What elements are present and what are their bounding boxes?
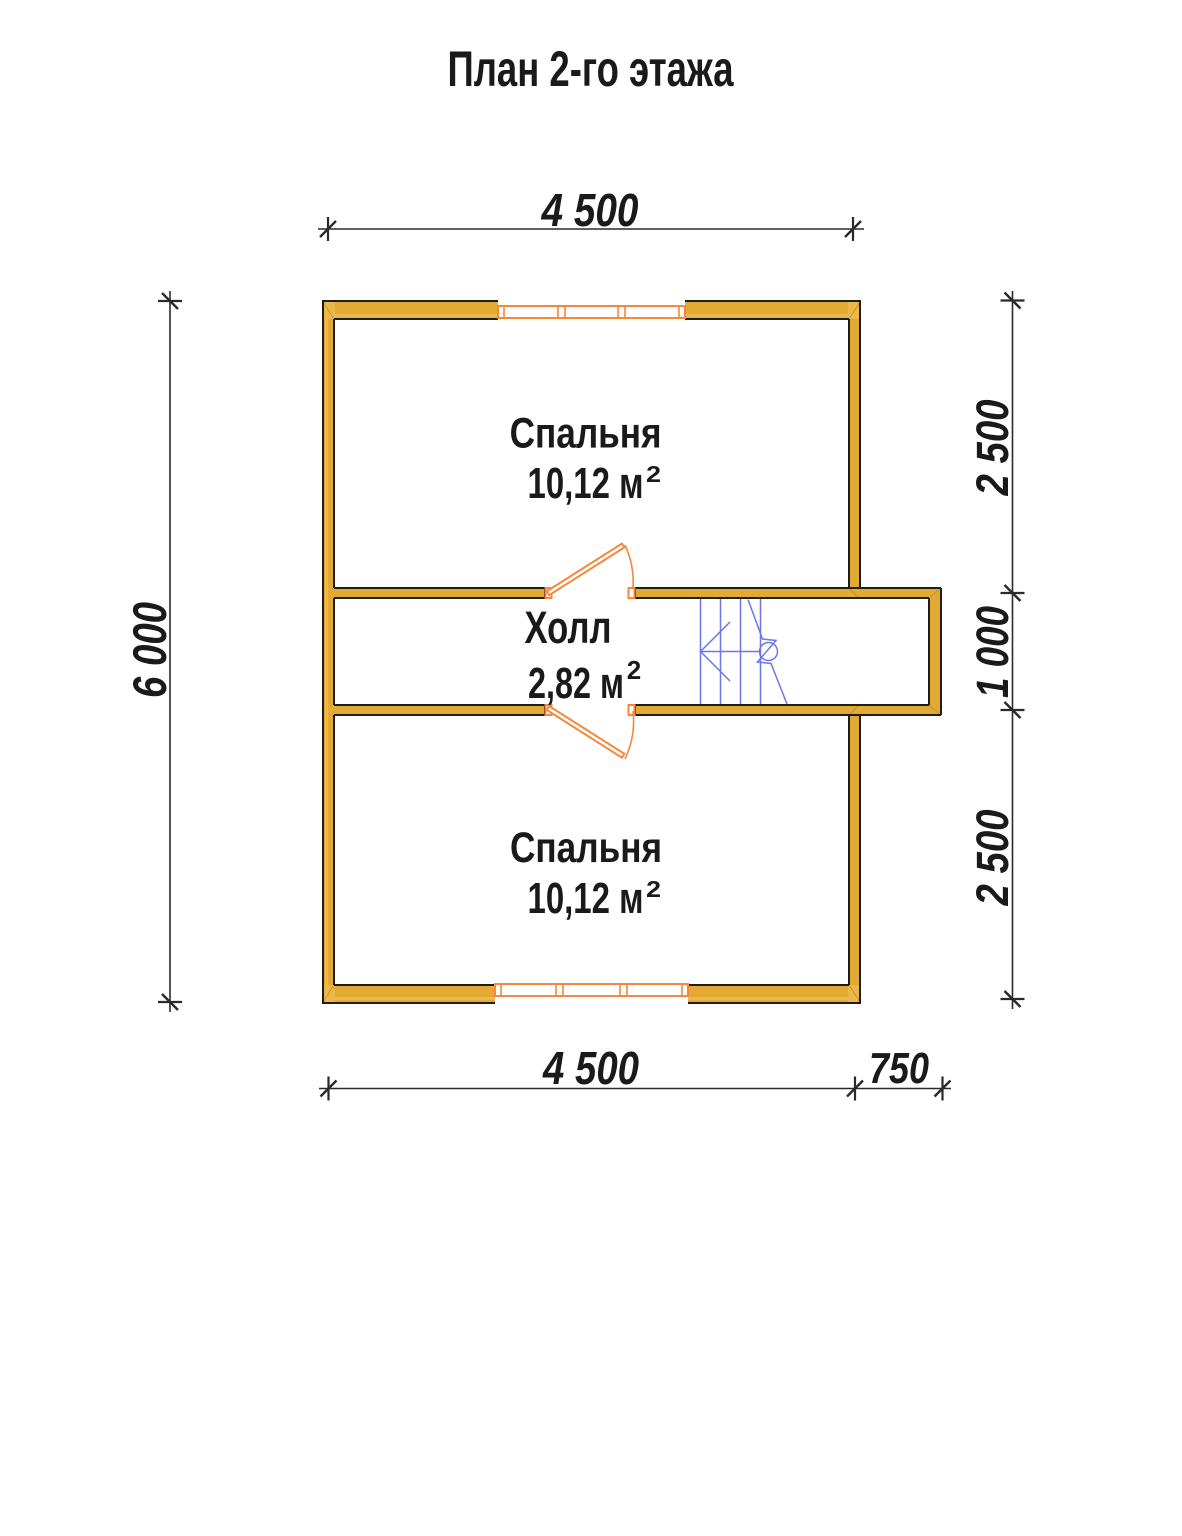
svg-text:План 2-го этажа: План 2-го этажа [448, 41, 735, 97]
svg-text:10,12 м: 10,12 м [528, 874, 644, 923]
svg-text:2: 2 [627, 655, 641, 685]
svg-text:2: 2 [646, 876, 661, 902]
svg-text:4 500: 4 500 [542, 1042, 639, 1094]
svg-text:750: 750 [869, 1044, 929, 1093]
svg-text:2,82 м: 2,82 м [528, 659, 624, 708]
svg-text:4 500: 4 500 [541, 184, 639, 236]
svg-text:6 000: 6 000 [123, 602, 176, 698]
svg-text:2: 2 [646, 461, 661, 487]
svg-text:2 500: 2 500 [967, 810, 1018, 907]
svg-text:Холл: Холл [525, 602, 612, 653]
svg-text:Спальня: Спальня [510, 410, 662, 458]
svg-text:10,12 м: 10,12 м [528, 459, 644, 508]
svg-text:Спальня: Спальня [510, 824, 662, 872]
svg-text:1 000: 1 000 [967, 606, 1018, 698]
svg-text:2 500: 2 500 [967, 400, 1018, 497]
